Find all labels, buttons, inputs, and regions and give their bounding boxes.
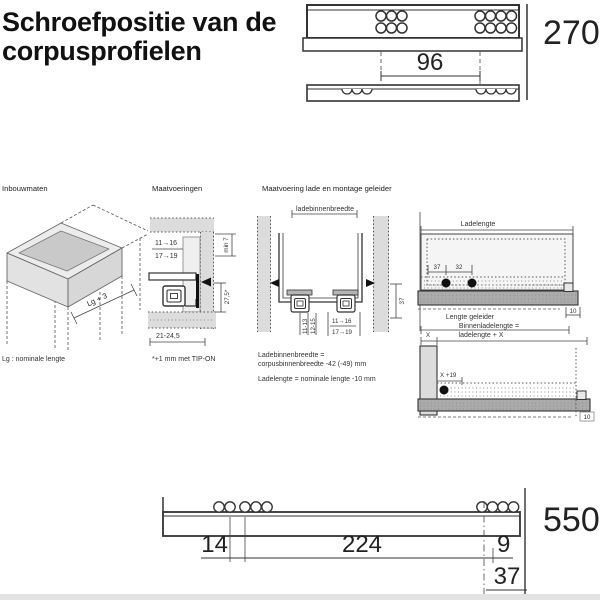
dim-224: 224 (342, 531, 382, 558)
montage-diagram: ladebinnenbreedte 37 11-13 12-15 (257, 206, 406, 383)
screw-hole (251, 502, 261, 512)
x-label: X (426, 332, 430, 339)
screw-hole (475, 11, 485, 21)
screw-hole (477, 502, 487, 512)
fixing-point-dot (440, 386, 449, 395)
cabinet-side-panel-left (257, 216, 271, 332)
screw-hole-arc (362, 89, 372, 94)
screw-hole (475, 23, 485, 33)
screw-hole (376, 23, 386, 33)
screw-hole-arc (496, 89, 506, 94)
profile-rail-base (303, 38, 522, 51)
side-thickness-a: 11→16 (155, 240, 177, 247)
note-nominale-lengte: Lg : nominale lengte (2, 356, 65, 363)
screw-hole (225, 502, 235, 512)
nominal-length-270: 270 (543, 14, 600, 52)
dim-hole-offset-37: 37 (434, 264, 441, 271)
slide-profile-inner (343, 301, 349, 306)
screw-hole (262, 502, 272, 512)
screw-hole (507, 11, 517, 21)
formula-length: Ladelengte = nominale lengte -10 mm (258, 376, 376, 383)
screw-hole (508, 502, 518, 512)
screw-hole (397, 23, 407, 33)
bottom-thickness-b: 12-15 (310, 318, 317, 334)
screw-hole-arc (476, 89, 486, 94)
dim-9: 9 (497, 531, 510, 558)
dim-min-7: min 7 (223, 237, 230, 253)
fixing-point-dot (442, 279, 451, 288)
screw-hole-groups (214, 502, 519, 512)
dim-hole-pitch-32: 32 (456, 264, 463, 271)
fixing-point-dot (468, 279, 477, 288)
cabinet-profile-drawing: 96 270 (303, 4, 600, 101)
drawer-bottom-strip (287, 290, 312, 295)
dim-rail-height-37: 37 (399, 297, 406, 304)
slide-profile-inner (171, 294, 178, 299)
screw-hole-arc (486, 89, 496, 94)
maatvoeringen-diagram: 11→16 17→19 min 7 27,5* 21-24,5 *+1 mm m… (148, 218, 236, 363)
tip-on-footnote: *+1 mm met TIP-ON (152, 356, 215, 363)
side-thickness-b: 17→19 (155, 253, 178, 260)
screw-hole (486, 23, 496, 33)
inner-length-label-2: ladelengte + X (459, 332, 504, 339)
rail-screw-position-drawing: 14 224 9 37 550 (163, 488, 600, 598)
screw-hole (240, 502, 250, 512)
header-montage: Maatvoering lade en montage geleider (262, 184, 392, 193)
screw-hole-arc (506, 89, 516, 94)
dim-14: 14 (201, 531, 228, 558)
rail-hook (564, 283, 573, 292)
header-maatvoeringen: Maatvoeringen (152, 184, 202, 193)
cabinet-side-panel-right (373, 216, 389, 332)
page-title-line1: Schroefpositie van de (2, 7, 277, 37)
drawer-length-label: Ladelengte (461, 221, 496, 228)
screw-hole (387, 11, 397, 21)
screw-hole-arc (352, 89, 362, 94)
screw-hole (507, 23, 517, 33)
screw-hole (376, 11, 386, 21)
side-thickness-b: 17→19 (332, 329, 353, 336)
drawer-bottom-bar (149, 273, 196, 280)
rail-mount-strip (196, 274, 199, 308)
geleider-bottom-diagram: Binnenladelengte = ladelengte + X X X +1… (418, 323, 594, 421)
mount-arrow-icon-left (270, 279, 279, 287)
screw-hole (214, 502, 224, 512)
page-title-line2: corpusprofielen (2, 36, 202, 66)
geleider-top-diagram: Ladelengte 37 32 10 Lengte geleider (418, 212, 580, 334)
formula-width-2: corpusbinnenbreedte -42 (-49) mm (258, 361, 366, 368)
drawer-bottom-strip (333, 290, 358, 295)
dim-27-5: 27,5* (224, 289, 231, 304)
screw-hole (397, 11, 407, 21)
screw-hole (387, 23, 397, 33)
formula-width-1: Ladebinnenbreedte = (258, 352, 324, 359)
dim-21-24-5: 21-24,5 (156, 333, 180, 340)
screw-hole (496, 23, 506, 33)
rail-hook (577, 391, 586, 400)
isometric-drawer-diagram: Lg + 3 Lg : nominale lengte (2, 205, 148, 363)
screw-hole (487, 502, 497, 512)
drawer-box-inner-line (283, 233, 358, 298)
dim-x-plus-19: X +19 (440, 372, 457, 379)
inner-width-label: ladebinnenbreedte (296, 206, 354, 213)
dim-overhang-10: 10 (584, 414, 591, 421)
side-thickness-a: 11→16 (332, 318, 352, 325)
dim-overhang-10: 10 (570, 308, 577, 315)
nominal-length-550: 550 (543, 501, 600, 539)
screw-hole (498, 502, 508, 512)
screw-hole (486, 11, 496, 21)
screw-hole (496, 11, 506, 21)
page-edge (0, 594, 600, 600)
dimension-tick (71, 312, 77, 324)
rail-length-label: Lengte geleider (446, 314, 495, 321)
header-inbouwmaten: Inbouwmaten (2, 184, 48, 193)
slide-profile-inner (297, 301, 303, 306)
cabinet-top-panel (150, 218, 214, 232)
technical-page: Schroefpositie van de corpusprofielen (0, 0, 600, 600)
dimension-tick (131, 284, 137, 296)
screw-hole-arc (342, 89, 352, 94)
guide-rail (418, 291, 578, 305)
inner-length-label-1: Binnenladelengte = (459, 323, 519, 330)
bottom-thickness-a: 11-13 (302, 318, 309, 334)
dim-hole-spacing: 96 (417, 49, 444, 76)
dim-37: 37 (494, 563, 521, 590)
